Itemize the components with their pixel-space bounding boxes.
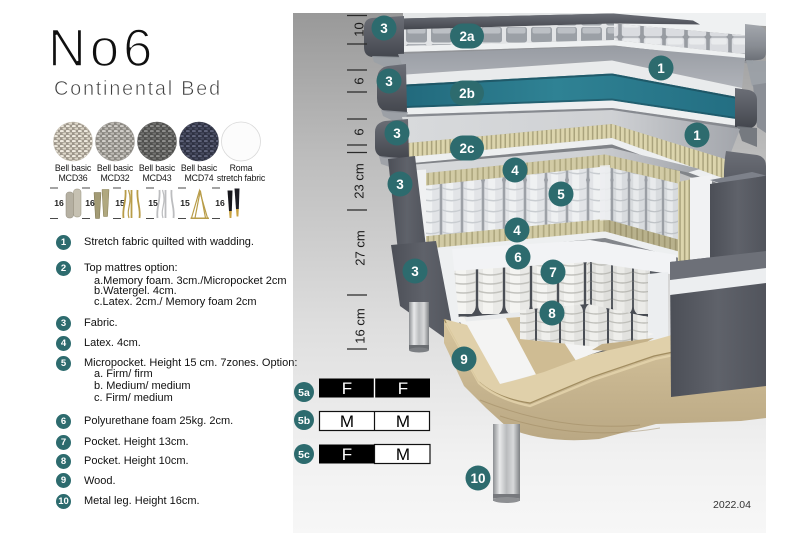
svg-text:5b: 5b [298,415,310,427]
svg-text:16 cm: 16 cm [353,308,368,343]
svg-text:7: 7 [549,265,557,280]
svg-text:6: 6 [514,250,522,265]
svg-text:M: M [340,412,354,431]
svg-text:6: 6 [352,128,367,135]
svg-text:3: 3 [411,264,419,279]
svg-text:2c: 2c [459,141,475,156]
svg-text:1: 1 [657,61,665,76]
svg-text:3: 3 [380,21,388,36]
svg-text:3: 3 [393,126,401,141]
svg-text:1: 1 [693,128,701,143]
svg-text:5c: 5c [298,449,310,461]
svg-text:4: 4 [511,163,519,178]
svg-text:2b: 2b [459,86,475,101]
svg-text:M: M [396,412,410,431]
svg-text:10: 10 [352,22,367,36]
svg-text:27 cm: 27 cm [353,230,368,265]
svg-text:3: 3 [396,177,404,192]
svg-text:9: 9 [460,352,468,367]
svg-text:F: F [342,379,352,398]
svg-text:F: F [398,379,408,398]
svg-text:2a: 2a [459,29,475,44]
svg-text:23 cm: 23 cm [352,163,367,198]
svg-text:4: 4 [513,223,521,238]
svg-text:10: 10 [470,471,485,486]
svg-text:3: 3 [385,74,393,89]
svg-text:M: M [396,445,410,464]
svg-text:2022.04: 2022.04 [713,499,751,511]
svg-text:6: 6 [352,77,367,84]
svg-text:5a: 5a [298,387,310,399]
svg-text:8: 8 [548,306,556,321]
svg-text:5: 5 [557,187,565,202]
svg-text:F: F [342,445,352,464]
